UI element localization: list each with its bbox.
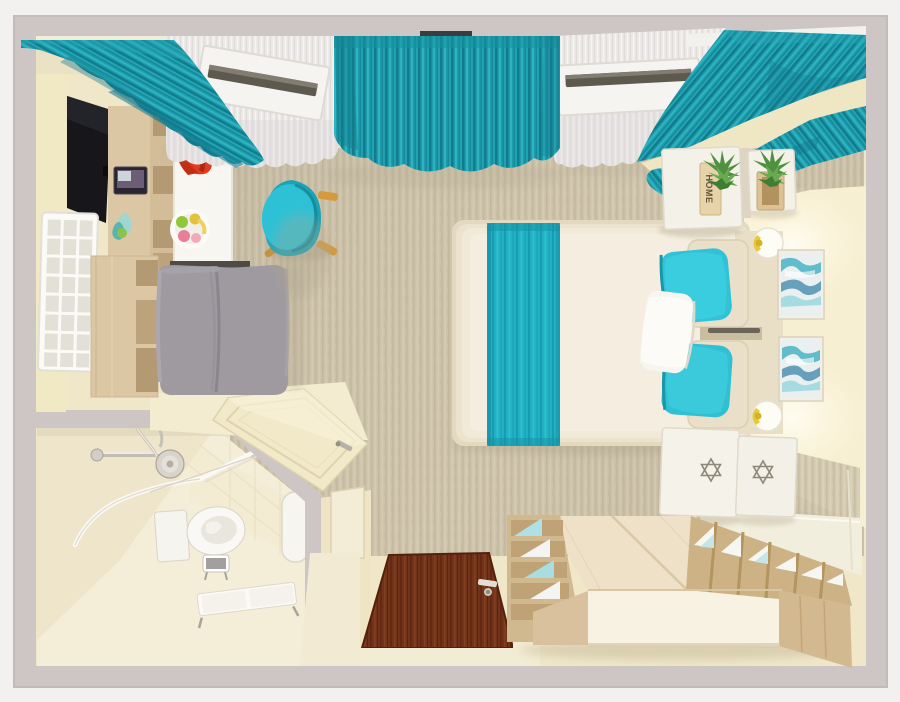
svg-text:HOME: HOME (704, 175, 714, 204)
